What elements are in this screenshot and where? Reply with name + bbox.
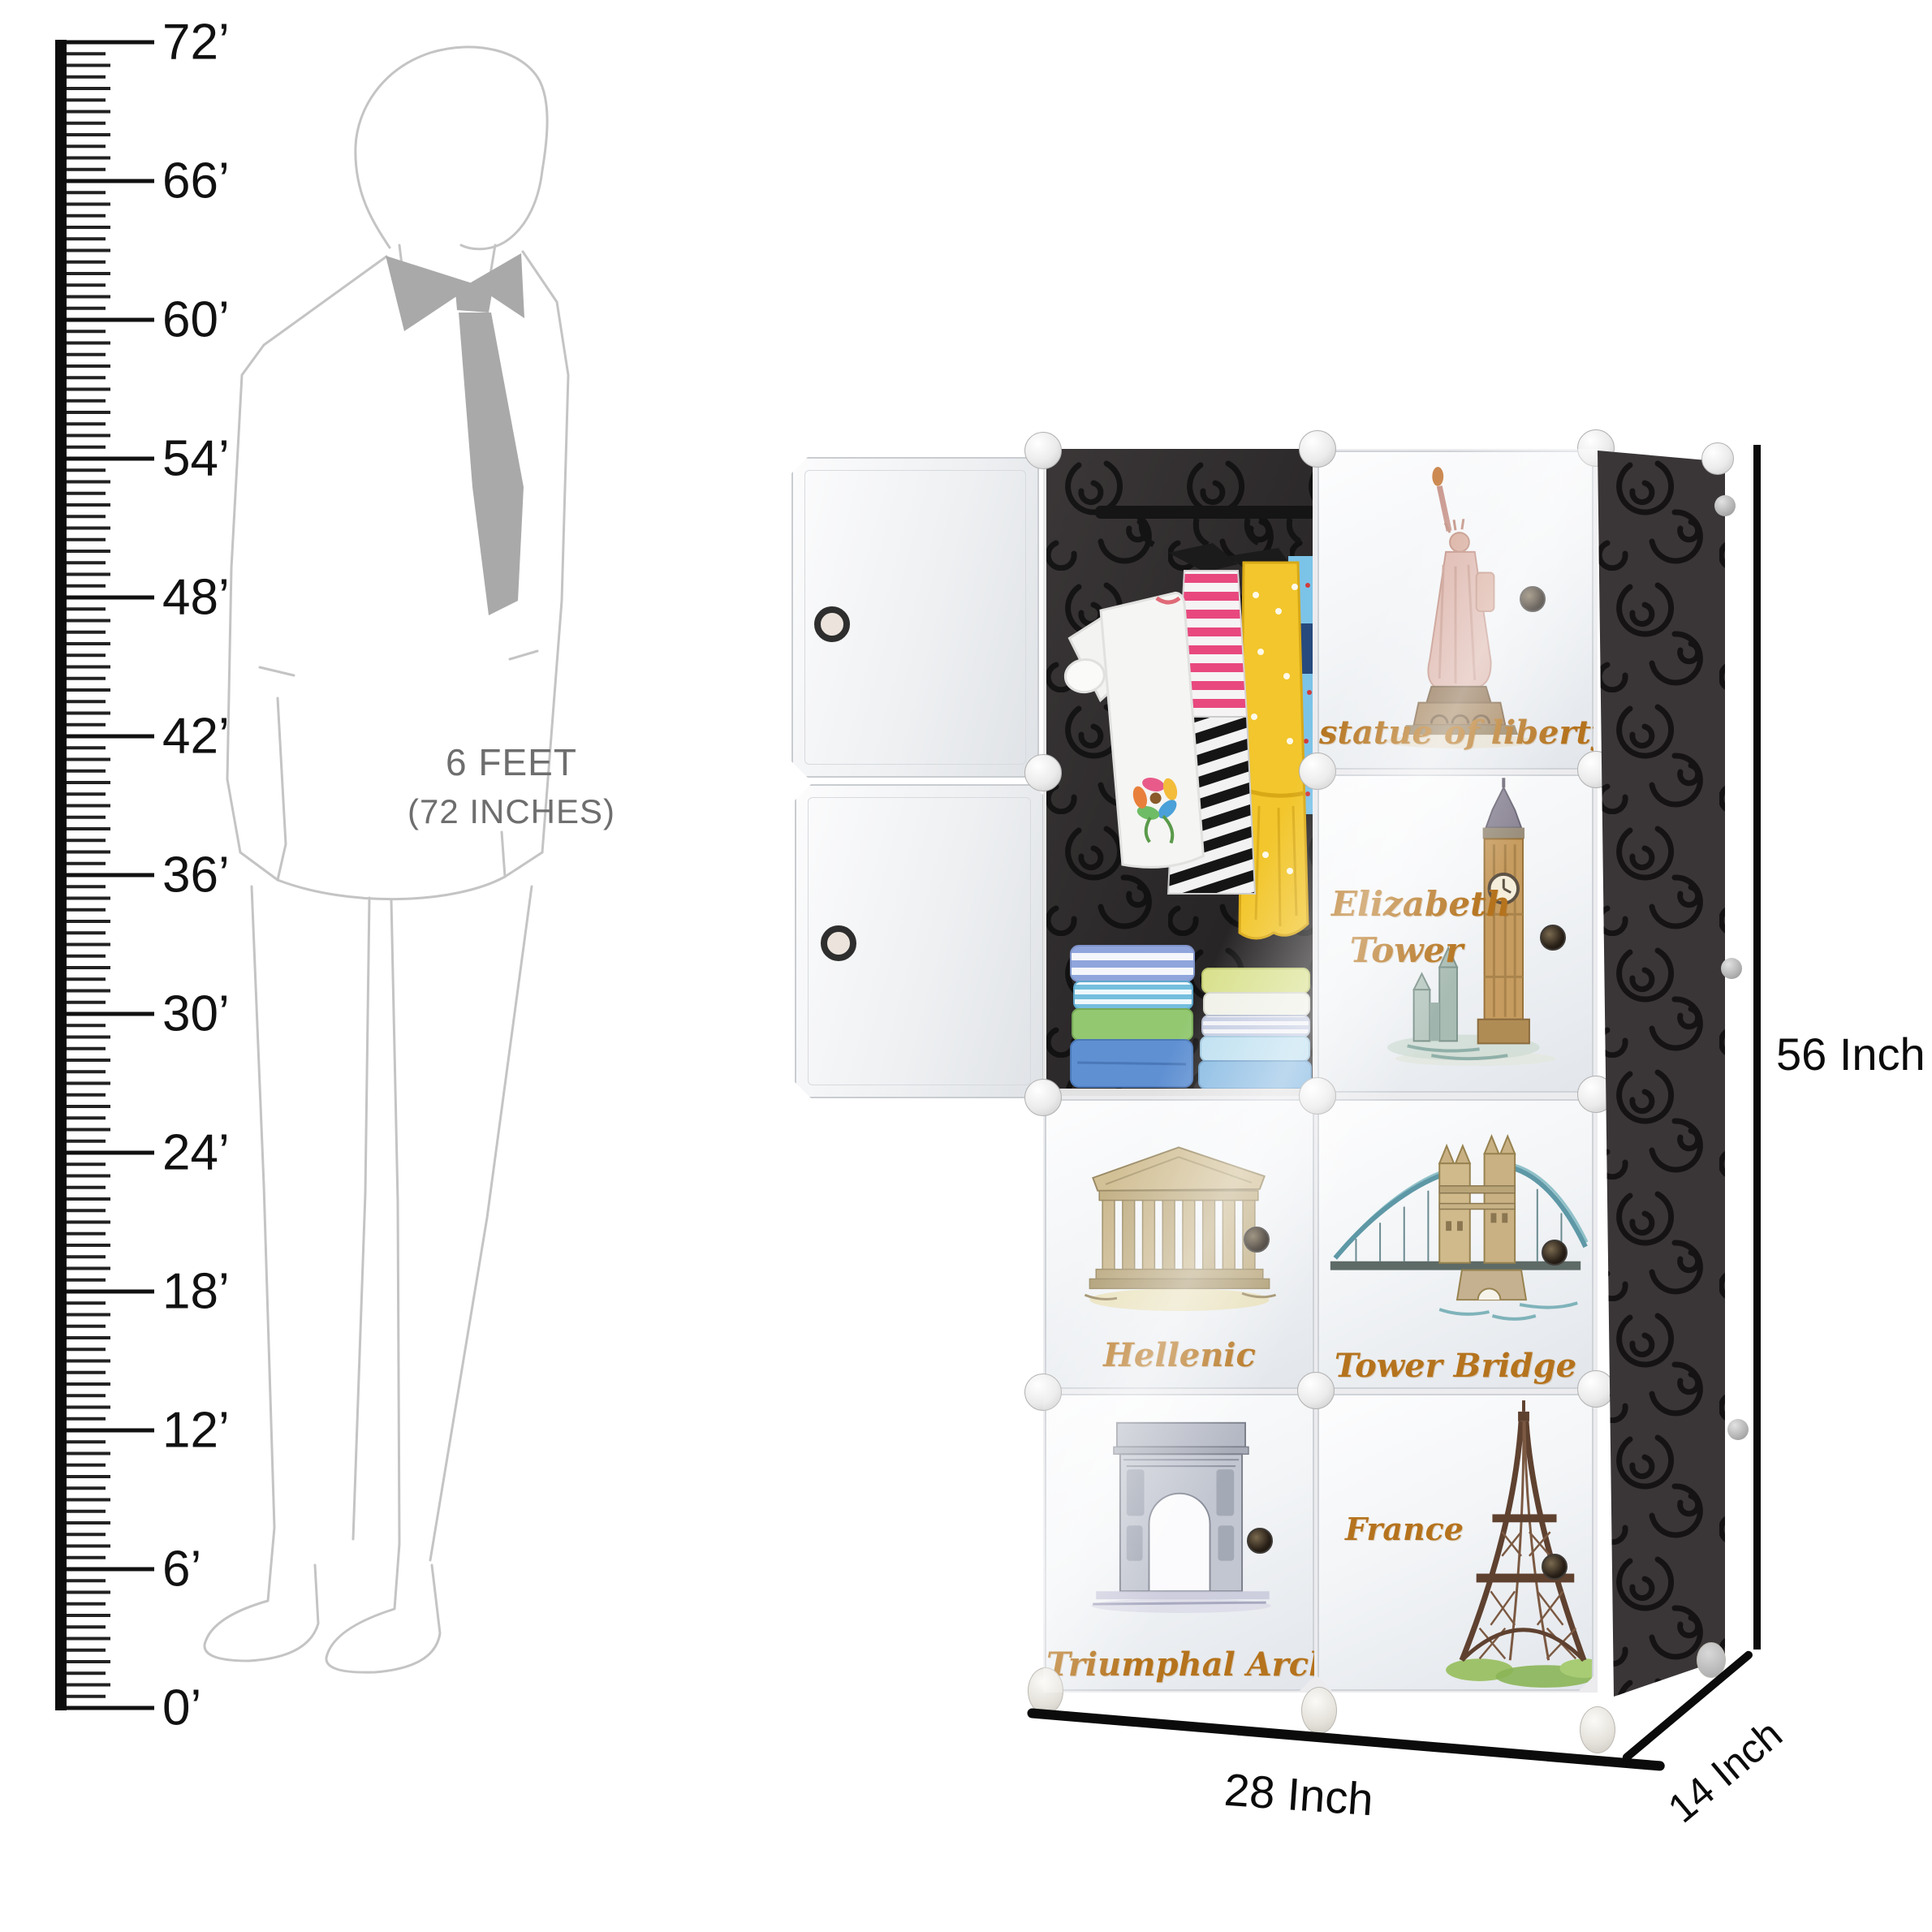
connector-ball-icon — [1024, 754, 1062, 791]
door-statue-of-liberty: statue of liberty — [1317, 451, 1593, 770]
wardrobe-foot-icon — [1028, 1667, 1063, 1714]
connector-ball-icon — [1297, 1372, 1335, 1409]
wardrobe-side-panel — [1598, 449, 1726, 1703]
door-knob-icon — [1247, 1528, 1273, 1554]
door-knob-icon — [1542, 1554, 1568, 1580]
depth-dimension-label: 14 Inch — [1628, 1684, 1822, 1859]
width-dimension-line — [1027, 1708, 1665, 1771]
door-label: Hellenic — [1046, 1336, 1313, 1374]
open-door-top — [791, 457, 1039, 778]
side-knob-icon — [1721, 958, 1742, 979]
connector-ball-icon — [1024, 1374, 1062, 1411]
width-dimension-label: 28 Inch — [1151, 1758, 1447, 1831]
side-knob-icon — [1727, 1419, 1749, 1440]
door-label: ElizabethTower — [1331, 882, 1481, 973]
door-knob-icon — [1540, 925, 1566, 951]
door-label: Tower Bridge — [1319, 1347, 1592, 1385]
caption-feet: 6 FEET — [369, 740, 653, 784]
door-label: France — [1339, 1511, 1469, 1547]
folded-towels-left — [1071, 946, 1194, 1087]
door-hellenic: Hellenic — [1045, 1099, 1314, 1389]
wardrobe-foot-icon — [1580, 1706, 1615, 1753]
human-silhouette — [187, 32, 609, 1688]
product-size-comparison: 72’66’60’54’48’42’36’30’24’18’12’6’0’ — [0, 0, 1932, 1932]
door-knob-icon — [814, 606, 850, 642]
silhouette-head — [356, 47, 547, 249]
height-dimension-label: 56 Inch — [1776, 1028, 1926, 1080]
door-label: statue of liberty — [1319, 714, 1592, 752]
silhouette-shoe — [205, 1528, 318, 1661]
caption-inches: (72 INCHES) — [369, 792, 653, 831]
door-label-line1: Elizabeth — [1331, 884, 1511, 924]
door-triumphal-arch: Triumphal Arch — [1045, 1394, 1314, 1691]
folded-towels-right — [1199, 968, 1311, 1089]
door-knob-icon — [1520, 586, 1546, 612]
door-knob-icon — [1244, 1227, 1270, 1253]
silhouette-collar-tie — [386, 253, 524, 615]
door-france: France — [1317, 1394, 1593, 1691]
connector-ball-icon — [1701, 442, 1734, 475]
connector-ball-icon — [1299, 753, 1336, 790]
wardrobe-front: statue of liberty — [1043, 449, 1598, 1693]
compartment-contents — [1046, 449, 1313, 1096]
height-dimension-line — [1753, 445, 1761, 1650]
silhouette-shoe — [326, 1544, 440, 1672]
wardrobe-open-compartment — [1043, 449, 1313, 1096]
connector-ball-icon — [1299, 430, 1336, 468]
hanging-rod — [1095, 506, 1313, 519]
wardrobe-foot-icon — [1301, 1687, 1337, 1734]
door-label: Triumphal Arch — [1046, 1645, 1313, 1684]
side-knob-icon — [1714, 495, 1736, 516]
connector-ball-icon — [1299, 1077, 1336, 1115]
connector-ball-icon — [1024, 432, 1062, 469]
door-knob-icon — [1542, 1240, 1568, 1266]
door-knob-icon — [821, 925, 856, 961]
open-door-bottom — [795, 784, 1044, 1098]
door-label-line2: Tower — [1350, 930, 1463, 970]
height-caption: 6 FEET (72 INCHES) — [369, 740, 653, 831]
connector-ball-icon — [1024, 1079, 1062, 1116]
